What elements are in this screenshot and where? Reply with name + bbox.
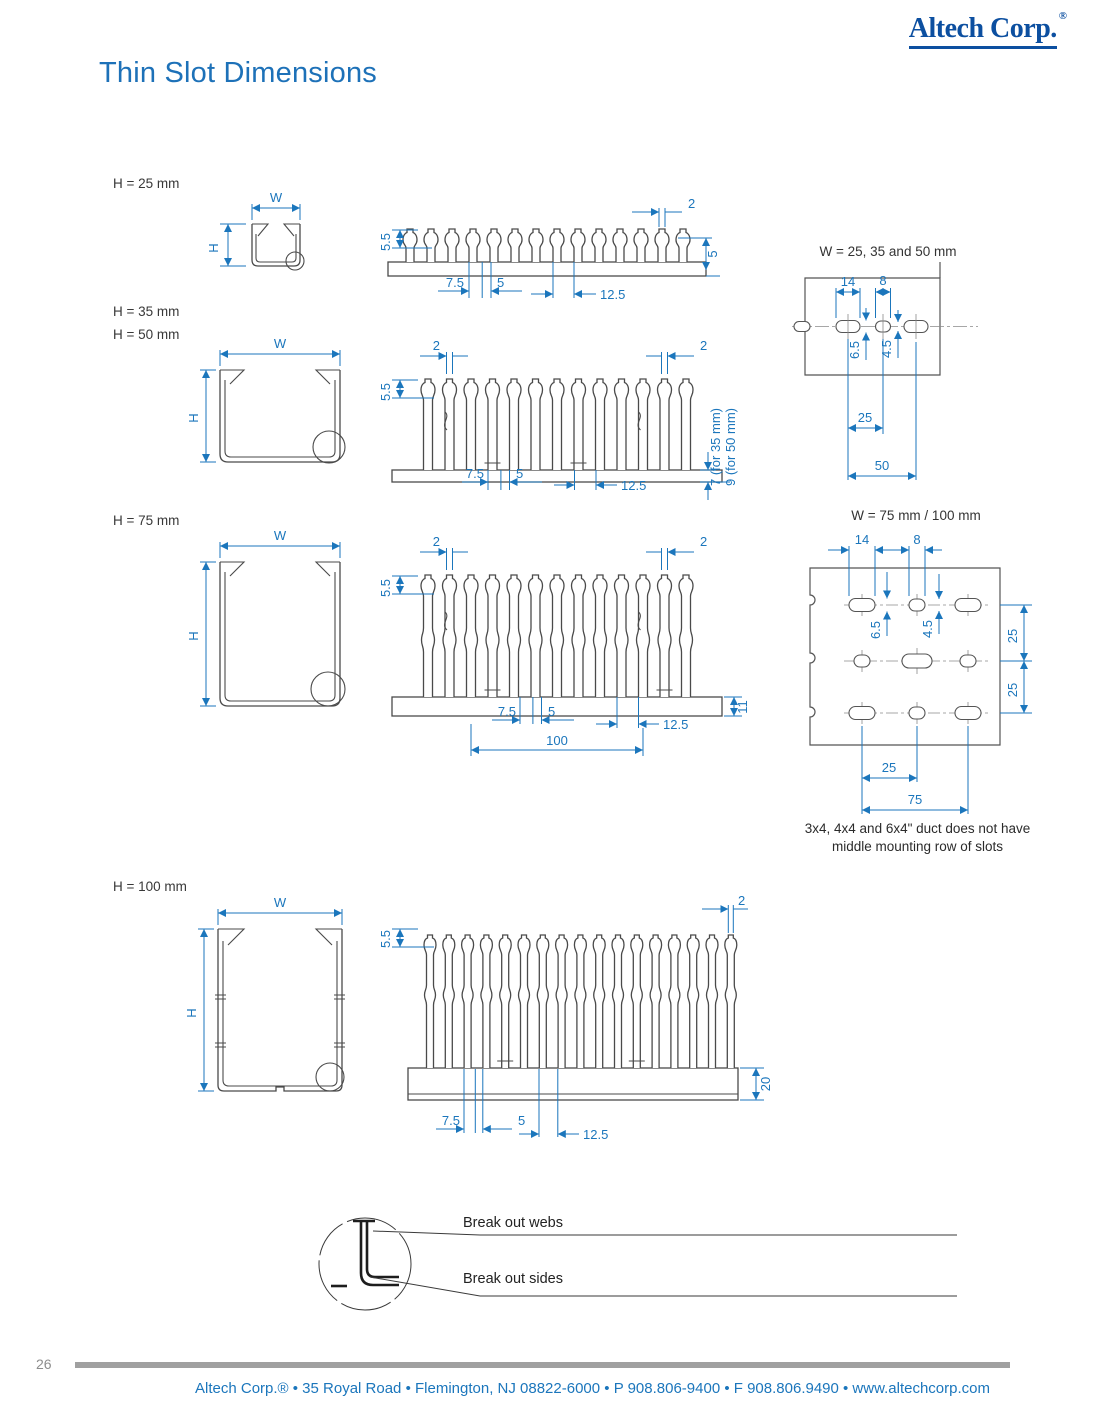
dim-col-overall: 75 xyxy=(908,792,922,807)
dim-label-h: H xyxy=(206,243,221,252)
dim-hole-length: 8 xyxy=(879,273,886,288)
dim-overall-width: 100 xyxy=(546,733,568,748)
dim-top-offset: 5.5 xyxy=(378,233,393,251)
mounting-slots xyxy=(849,599,981,720)
dim-label-w: W xyxy=(274,528,287,543)
dim-pitch: 12.5 xyxy=(583,1127,608,1142)
corner-profile xyxy=(331,1221,399,1286)
dimensions: 14 8 6.5 4.5 25 50 xyxy=(836,273,916,480)
dim-row-spacing-top: 25 xyxy=(1005,629,1020,643)
duct-outline xyxy=(220,562,345,706)
page-title: Thin Slot Dimensions xyxy=(99,57,377,90)
dim-tab-width-right: 2 xyxy=(700,534,707,549)
mounting-note-line2: middle mounting row of slots xyxy=(795,838,1040,856)
dim-tab-width: 2 xyxy=(688,196,695,211)
dim-hole-width: 4.5 xyxy=(920,620,935,638)
dim-slot-width: 6.5 xyxy=(847,341,862,359)
slot-teeth xyxy=(403,229,690,262)
heading-h75: H = 75 mm xyxy=(113,513,179,528)
dim-slot-width: 6.5 xyxy=(868,621,883,639)
dim-label-h: H xyxy=(186,413,201,422)
dimensions: W H xyxy=(186,528,340,706)
dim-pitch-half: 7.5 xyxy=(442,1113,460,1128)
footer-address: Altech Corp.® • 35 Royal Road • Flemingt… xyxy=(130,1380,1055,1397)
breakout-sides-label: Break out sides xyxy=(463,1271,563,1287)
profile-base xyxy=(388,262,706,276)
h25-slot-profile-diagram: 5.5 2 5 7.5 5 12.5 xyxy=(370,192,730,310)
dimensions: 14 8 6.5 4.5 25 25 25 75 xyxy=(828,532,1032,814)
mounting-note: 3x4, 4x4 and 6x4" duct does not have mid… xyxy=(795,820,1040,855)
registered-mark: ® xyxy=(1059,10,1067,22)
base-note-50: 9 (for 50 mm) xyxy=(723,408,738,486)
profile-base xyxy=(392,697,722,716)
dim-pitch-half: 7.5 xyxy=(466,466,484,481)
dim-label-w: W xyxy=(274,895,287,910)
dim-top-offset: 5.5 xyxy=(378,383,393,401)
h35-50-slot-profile-diagram: 5.5 2 2 7.5 5 12.5 7 (for 35 mm) 9 (for … xyxy=(370,332,762,510)
dim-label-h: H xyxy=(186,631,201,640)
dim-overall: 50 xyxy=(875,458,889,473)
catalog-page: Altech Corp.® Thin Slot Dimensions H = 2… xyxy=(0,0,1100,1422)
dim-slot-width: 5 xyxy=(548,704,555,719)
profile-base xyxy=(408,1068,738,1100)
dim-base-height: 20 xyxy=(758,1077,773,1091)
page-number: 26 xyxy=(36,1356,52,1372)
wall-joint-ticks xyxy=(215,995,345,1047)
slot-teeth xyxy=(424,935,737,1068)
dim-spacing: 25 xyxy=(858,410,872,425)
dim-col-spacing: 25 xyxy=(882,760,896,775)
dim-label-w: W xyxy=(274,336,287,351)
dim-top-offset: 5.5 xyxy=(378,579,393,597)
mounting-note-line1: 3x4, 4x4 and 6x4" duct does not have xyxy=(795,820,1040,838)
dim-top-offset: 5.5 xyxy=(378,930,393,948)
dim-slot-width: 5 xyxy=(516,466,523,481)
slot-teeth xyxy=(421,575,693,697)
h100-cross-section-diagram: W H xyxy=(190,891,365,1111)
dim-base-height: 11 xyxy=(735,700,750,714)
dim-pitch: 12.5 xyxy=(621,478,646,493)
dim-row-spacing-bottom: 25 xyxy=(1005,683,1020,697)
dim-slot-length: 14 xyxy=(841,274,855,289)
dim-label-w: W xyxy=(270,190,283,205)
dimensions: W H xyxy=(186,336,340,462)
leader-lines xyxy=(370,1231,957,1296)
mounting-pattern-large-diagram: W = 75 mm / 100 mm 14 8 6. xyxy=(792,502,1092,822)
dim-slot-width: 5 xyxy=(518,1113,525,1128)
dim-side-depth: 5 xyxy=(705,250,720,257)
dim-hole-width: 4.5 xyxy=(879,340,894,358)
breakout-detail-diagram: Break out webs Break out sides xyxy=(285,1185,985,1325)
h100-slot-profile-diagram: 5.5 2 20 7.5 5 12.5 xyxy=(378,893,780,1145)
dim-label-h: H xyxy=(184,1008,199,1017)
duct-outline xyxy=(215,929,345,1091)
dim-pitch: 12.5 xyxy=(600,287,625,302)
dim-slot-width: 5 xyxy=(497,275,504,290)
footer-divider xyxy=(75,1362,1010,1368)
breakout-webs-label: Break out webs xyxy=(463,1215,563,1231)
dim-hole-length: 8 xyxy=(913,532,920,547)
heading-h100: H = 100 mm xyxy=(113,879,187,894)
duct-outline xyxy=(220,370,345,463)
duct-outline xyxy=(252,224,304,270)
heading-h25: H = 25 mm xyxy=(113,176,179,191)
mounting-small-title: W = 25, 35 and 50 mm xyxy=(820,244,957,259)
h35-50-cross-section-diagram: W H xyxy=(190,336,360,476)
logo-text: Altech Corp. xyxy=(909,13,1057,49)
dim-tab-width-left: 2 xyxy=(433,534,440,549)
dim-pitch-half: 7.5 xyxy=(446,275,464,290)
dim-tab-width-right: 2 xyxy=(700,338,707,353)
heading-h35: H = 35 mm xyxy=(113,304,179,319)
h75-slot-profile-diagram: 5.5 2 2 11 7.5 5 12.5 100 xyxy=(370,528,762,766)
dim-pitch: 12.5 xyxy=(663,717,688,732)
h25-cross-section-diagram: W H xyxy=(196,190,346,292)
mounting-large-title: W = 75 mm / 100 mm xyxy=(851,508,980,523)
mounting-pattern-small-diagram: W = 25, 35 and 50 mm 14 8 6.5 4.5 25 xyxy=(788,238,1028,500)
heading-h50: H = 50 mm xyxy=(113,327,179,342)
h75-cross-section-diagram: W H xyxy=(190,528,360,723)
corner-detail-circle xyxy=(316,1063,344,1091)
base-note-35: 7 (for 35 mm) xyxy=(708,408,723,486)
dim-pitch-half: 7.5 xyxy=(498,704,516,719)
profile-base xyxy=(392,470,722,482)
altech-logo: Altech Corp.® xyxy=(909,10,1067,49)
dimensions: W H xyxy=(206,190,300,266)
slot-teeth xyxy=(421,379,693,470)
dim-tab-width-left: 2 xyxy=(433,338,440,353)
dim-tab-width: 2 xyxy=(738,893,745,908)
dim-slot-length: 14 xyxy=(855,532,869,547)
dimensions: W H xyxy=(184,895,342,1091)
